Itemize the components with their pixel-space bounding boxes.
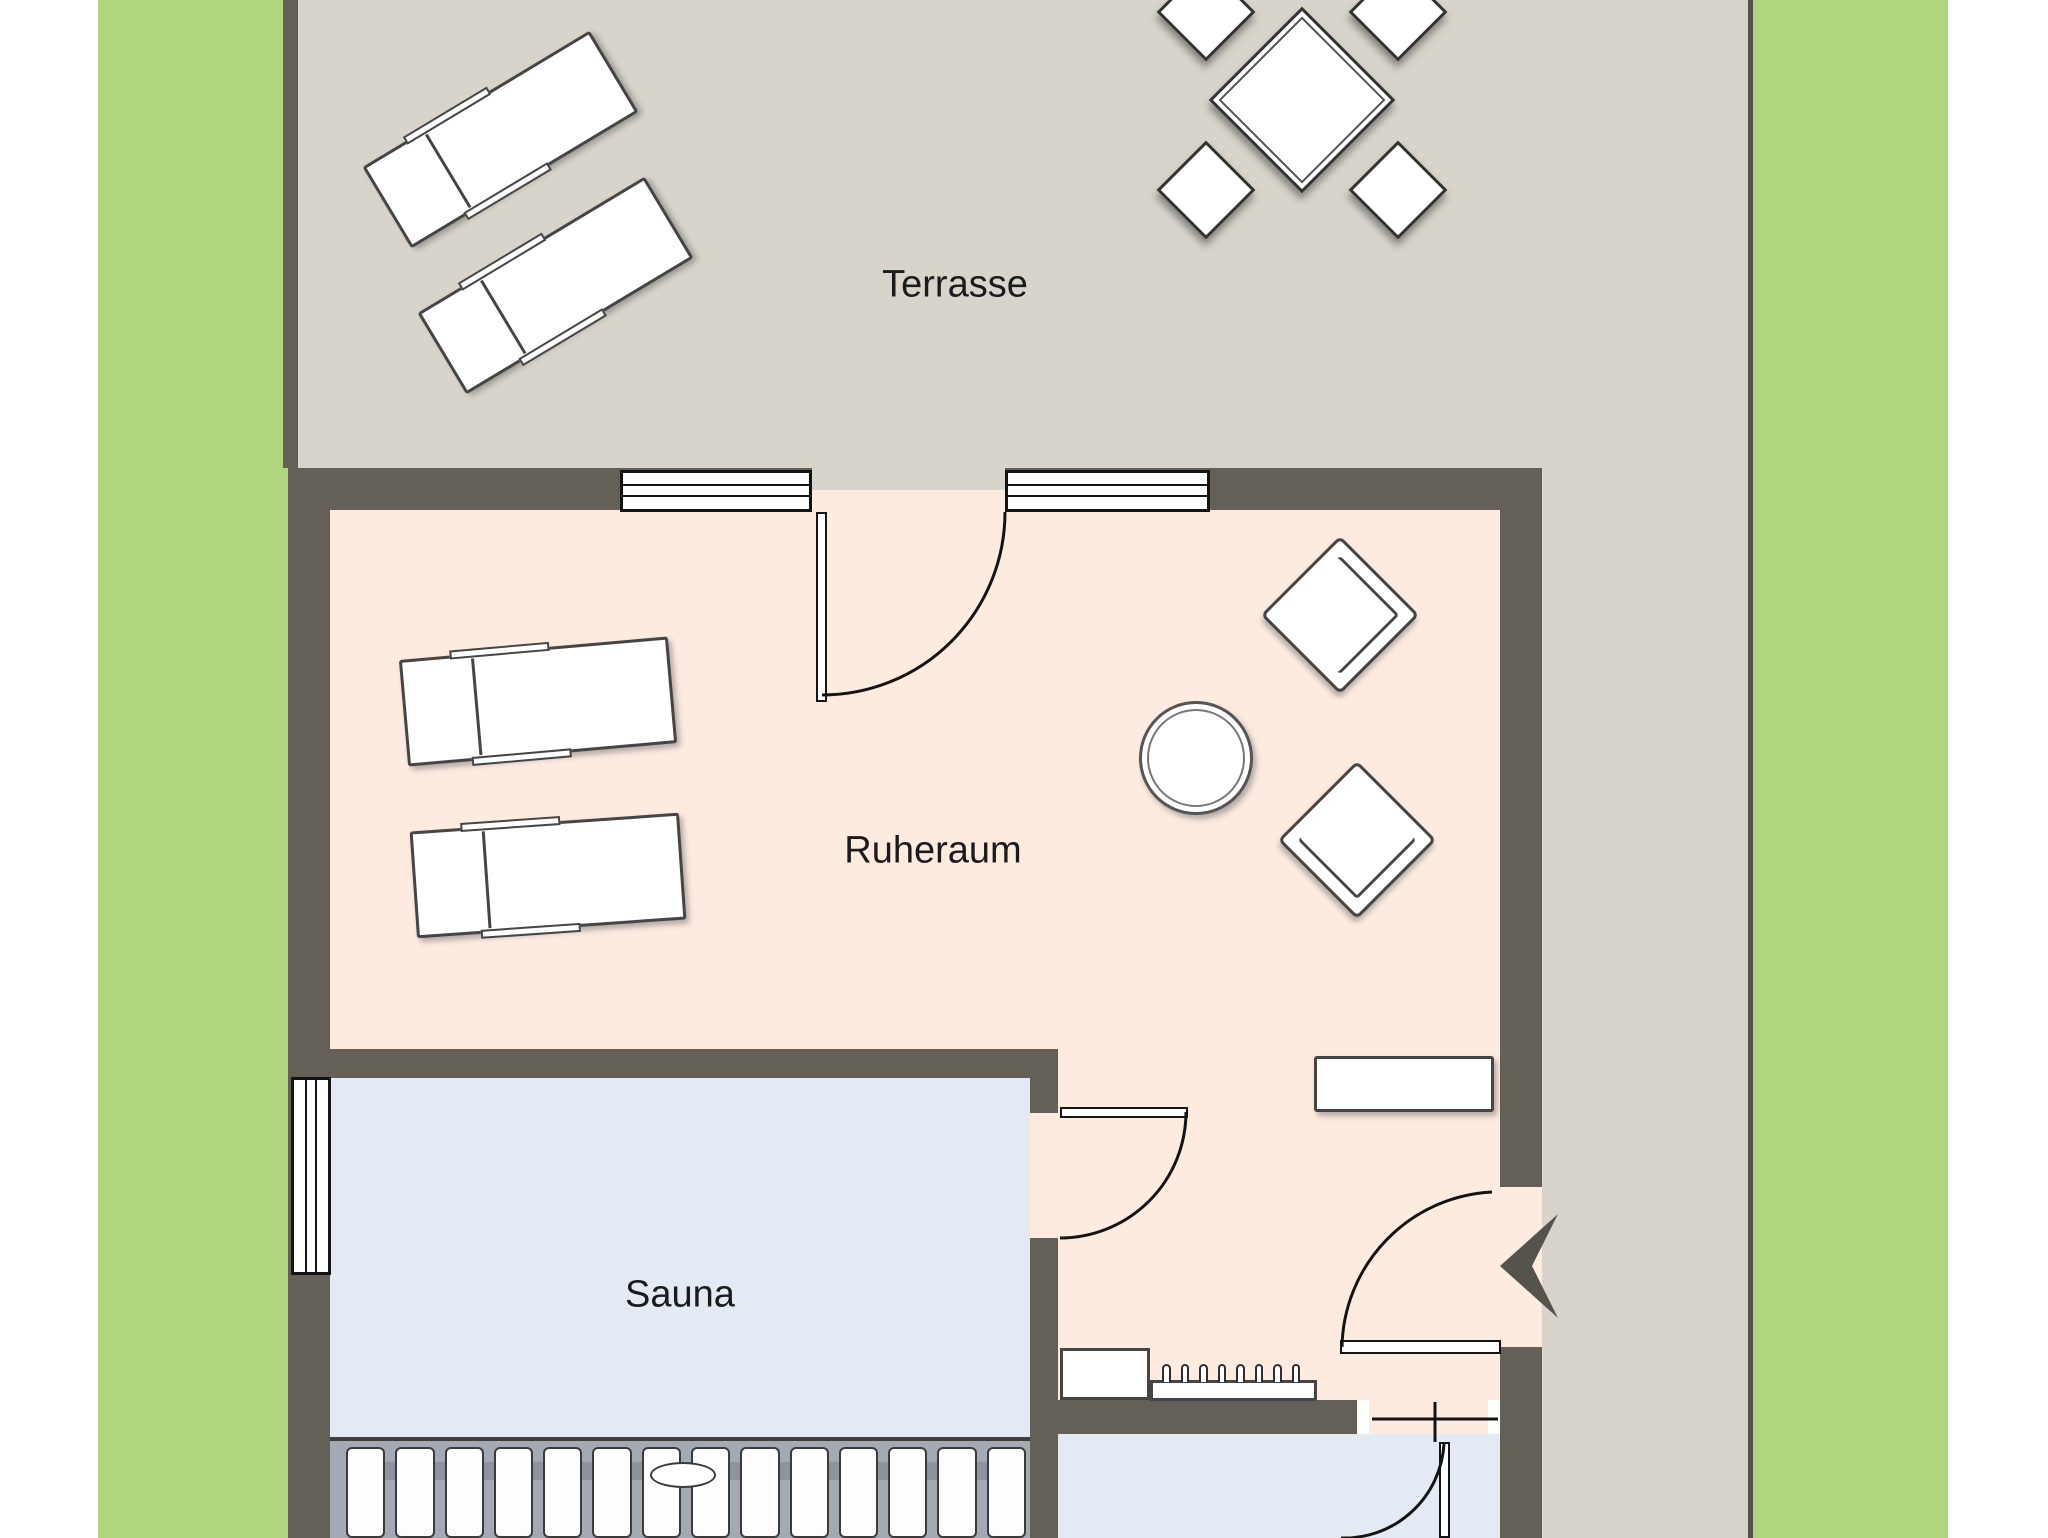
- terrace-paving: [296, 0, 1752, 468]
- slat: [888, 1447, 927, 1538]
- sauna-door-leaf: [1060, 1107, 1188, 1118]
- window-north-1: [620, 470, 812, 512]
- wall-east: [1500, 468, 1542, 1538]
- entrance-door-leaf: [1340, 1340, 1501, 1354]
- slat: [592, 1447, 631, 1538]
- slat: [642, 1447, 681, 1538]
- door-jamb-right: [1488, 1400, 1500, 1434]
- lounger-headrest-divider: [480, 280, 526, 354]
- coat-hooks: [1162, 1364, 1300, 1382]
- side-paving-right: [1542, 0, 1752, 1538]
- terrace-door-opening-inside: [812, 490, 1005, 510]
- hook: [1255, 1364, 1264, 1382]
- slat: [445, 1447, 484, 1538]
- slat: [691, 1447, 730, 1538]
- slat: [790, 1447, 829, 1538]
- hook: [1236, 1364, 1245, 1382]
- lounger-headrest-divider: [481, 831, 491, 928]
- hook: [1292, 1364, 1301, 1382]
- terrace-label: Terrasse: [882, 264, 1028, 307]
- wall-sauna-north: [330, 1049, 1058, 1078]
- slat: [494, 1447, 533, 1538]
- terrace-edge-wall: [283, 0, 298, 468]
- wall-west: [288, 468, 330, 1538]
- slat: [740, 1447, 779, 1538]
- wall-sauna-east-lower: [1030, 1238, 1058, 1538]
- slat: [839, 1447, 878, 1538]
- terrace-door-opening-outside: [812, 468, 1005, 492]
- slat: [395, 1447, 434, 1538]
- hook: [1199, 1364, 1208, 1382]
- window-west-sauna: [291, 1077, 331, 1275]
- sideboard: [1314, 1056, 1494, 1112]
- wall-bottom-room-north: [1030, 1400, 1369, 1434]
- slat: [987, 1447, 1026, 1538]
- slat: [543, 1447, 582, 1538]
- bottom-room-door-leaf: [1439, 1442, 1450, 1538]
- bottom-room-floor: [1058, 1434, 1500, 1538]
- terrace-door-leaf: [816, 512, 827, 702]
- garden-strip-left: [98, 0, 288, 1538]
- hook: [1218, 1364, 1227, 1382]
- hook: [1181, 1364, 1190, 1382]
- door-jamb-left: [1357, 1400, 1369, 1434]
- sauna-label: Sauna: [625, 1274, 735, 1317]
- hook: [1162, 1364, 1171, 1382]
- relax-lounger-2: [410, 813, 687, 939]
- site-boundary-line: [1748, 0, 1753, 1538]
- entrance-door-opening: [1500, 1187, 1542, 1347]
- entrance-step-upper: [1060, 1348, 1150, 1400]
- garden-strip-right: [1752, 0, 1948, 1538]
- round-side-table: [1139, 701, 1253, 815]
- sauna-bench-handle: [650, 1462, 716, 1488]
- floor-plan: Terrasse Ruheraum Sauna: [0, 0, 2048, 1538]
- entrance-step-lower: [1150, 1380, 1317, 1401]
- lounger-headrest-divider: [425, 134, 471, 208]
- wall-sauna-east-upper: [1030, 1078, 1058, 1113]
- sauna-bench-slats: [346, 1447, 1026, 1538]
- slat: [346, 1447, 385, 1538]
- hook: [1273, 1364, 1282, 1382]
- slat: [937, 1447, 976, 1538]
- lounger-headrest-divider: [471, 658, 482, 755]
- relax-room-label: Ruheraum: [844, 830, 1021, 873]
- window-north-2: [1005, 470, 1210, 512]
